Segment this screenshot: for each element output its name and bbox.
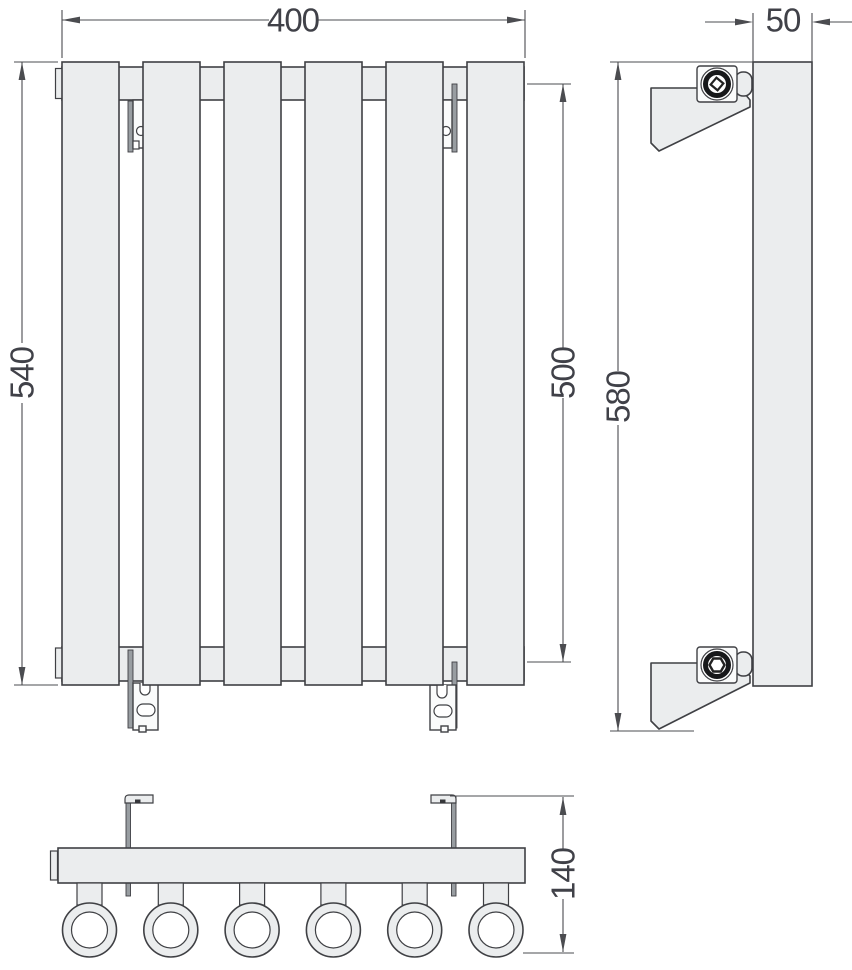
tube-stem xyxy=(77,883,102,905)
tube-stem xyxy=(402,883,427,905)
tube-stem xyxy=(158,883,183,905)
bottom-view xyxy=(51,795,526,957)
dimension-580: 580 xyxy=(600,62,754,731)
radiator-panel xyxy=(467,62,524,685)
tube-stem xyxy=(484,883,509,905)
tube-ring-inner xyxy=(397,912,433,948)
radiator-panel xyxy=(386,62,443,685)
collector-bottom xyxy=(58,848,525,883)
dimension-500: 500 xyxy=(527,84,582,662)
dim-collector-span-label: 500 xyxy=(545,346,582,399)
dimension-540: 540 xyxy=(4,62,59,685)
dim-depth-label: 50 xyxy=(766,2,801,39)
tube-ring-inner xyxy=(72,912,108,948)
tube-ring-inner xyxy=(478,912,514,948)
dimension-400: 400 xyxy=(62,2,525,59)
radiator-panel xyxy=(143,62,200,685)
tube-stem xyxy=(321,883,346,905)
wall-bracket-top xyxy=(651,66,752,151)
tube-ring-inner xyxy=(153,912,189,948)
front-view xyxy=(56,62,525,732)
dim-width-label: 400 xyxy=(267,2,320,39)
hex-socket-icon xyxy=(710,659,725,672)
mounting-rail xyxy=(452,84,457,152)
radiator-panel xyxy=(305,62,362,685)
wall-bracket-bottom xyxy=(651,647,752,729)
radiator-panels xyxy=(62,62,524,685)
tube-stem xyxy=(240,883,265,905)
radiator-panel xyxy=(62,62,119,685)
dim-overall-height-label: 540 xyxy=(4,346,41,399)
radiator-panel xyxy=(224,62,281,685)
dimension-50: 50 xyxy=(705,2,852,63)
tube-ring-inner xyxy=(315,912,351,948)
mounting-rail xyxy=(128,101,133,152)
technical-drawing-radiator: 400 540 500 50 580 140 xyxy=(0,0,852,970)
side-view xyxy=(651,62,812,729)
tube-ring-inner xyxy=(234,912,270,948)
side-profile xyxy=(753,62,812,686)
collector-plug xyxy=(51,851,58,880)
dim-bracket-span-label: 580 xyxy=(600,370,637,423)
dim-bottom-depth-label: 140 xyxy=(545,847,582,900)
